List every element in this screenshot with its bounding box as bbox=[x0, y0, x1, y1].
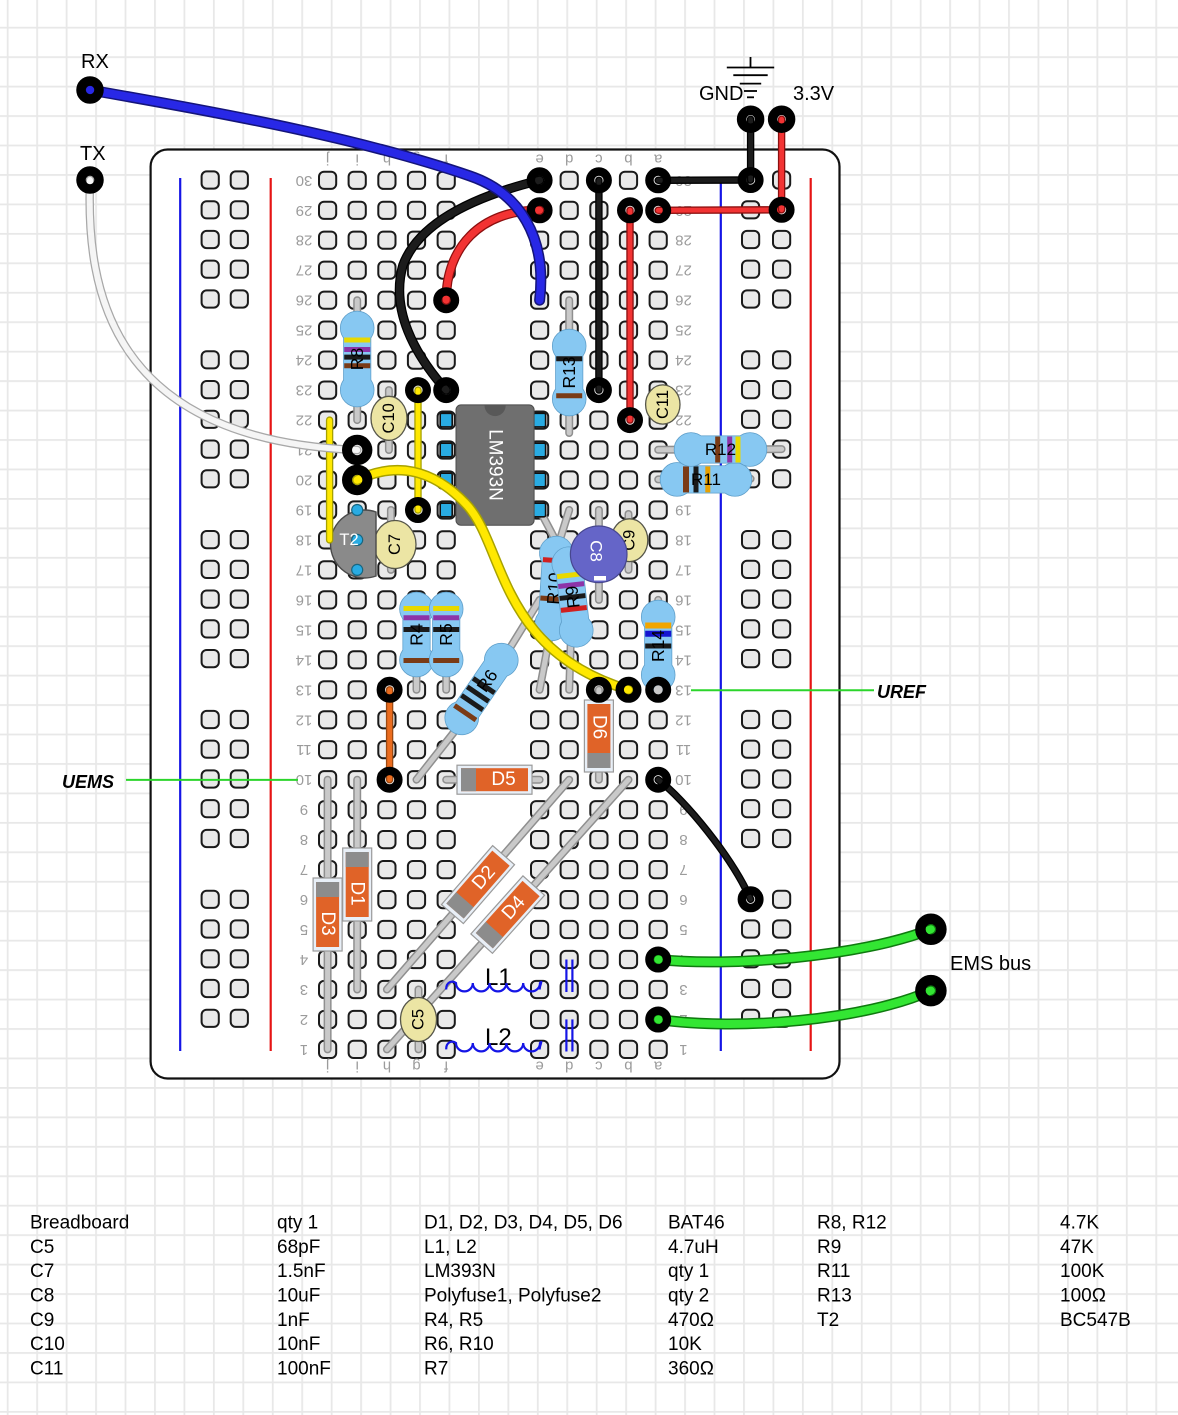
svg-text:100K: 100K bbox=[1060, 1261, 1105, 1282]
svg-text:L1, L2: L1, L2 bbox=[424, 1237, 477, 1258]
svg-text:17: 17 bbox=[296, 561, 313, 578]
svg-text:11: 11 bbox=[296, 741, 312, 758]
svg-text:16: 16 bbox=[675, 591, 692, 608]
svg-text:28: 28 bbox=[675, 232, 692, 249]
svg-text:R11: R11 bbox=[691, 470, 721, 489]
svg-text:qty 1: qty 1 bbox=[668, 1261, 709, 1282]
svg-text:C10: C10 bbox=[30, 1334, 65, 1355]
svg-text:4.7K: 4.7K bbox=[1060, 1213, 1099, 1234]
svg-text:c: c bbox=[595, 151, 603, 168]
svg-text:TX: TX bbox=[80, 143, 106, 165]
svg-text:LM393N: LM393N bbox=[424, 1261, 496, 1282]
svg-text:R9: R9 bbox=[561, 585, 583, 609]
svg-text:RX: RX bbox=[81, 51, 109, 73]
svg-text:3: 3 bbox=[679, 981, 687, 998]
svg-text:25: 25 bbox=[675, 322, 692, 339]
svg-text:d: d bbox=[565, 151, 573, 168]
svg-text:22: 22 bbox=[296, 412, 313, 429]
svg-text:i: i bbox=[356, 1058, 359, 1075]
svg-text:C9: C9 bbox=[30, 1310, 54, 1331]
svg-text:24: 24 bbox=[675, 352, 692, 369]
svg-text:D3: D3 bbox=[317, 911, 338, 935]
svg-text:a: a bbox=[653, 151, 662, 168]
svg-text:6: 6 bbox=[300, 891, 308, 908]
svg-text:4: 4 bbox=[300, 951, 308, 968]
svg-text:1: 1 bbox=[300, 1041, 308, 1058]
svg-text:R5: R5 bbox=[436, 623, 456, 645]
svg-text:3: 3 bbox=[300, 981, 308, 998]
svg-text:LM393N: LM393N bbox=[485, 429, 506, 501]
svg-text:C11: C11 bbox=[30, 1359, 63, 1380]
svg-text:12: 12 bbox=[296, 711, 313, 728]
svg-text:b: b bbox=[624, 1058, 632, 1075]
svg-text:C5: C5 bbox=[30, 1237, 54, 1258]
svg-text:EMS bus: EMS bus bbox=[950, 953, 1031, 975]
svg-text:5: 5 bbox=[300, 921, 308, 938]
svg-text:10uF: 10uF bbox=[277, 1286, 320, 1307]
svg-text:qty 1: qty 1 bbox=[277, 1213, 318, 1234]
svg-text:j: j bbox=[326, 151, 330, 168]
svg-text:d: d bbox=[565, 1058, 573, 1075]
svg-text:24: 24 bbox=[296, 352, 313, 369]
svg-text:qty 2: qty 2 bbox=[668, 1286, 709, 1307]
svg-text:3.3V: 3.3V bbox=[793, 83, 835, 105]
svg-text:C8: C8 bbox=[30, 1286, 54, 1307]
svg-text:23: 23 bbox=[296, 382, 313, 399]
svg-text:100nF: 100nF bbox=[277, 1359, 331, 1380]
svg-text:18: 18 bbox=[675, 531, 692, 548]
svg-text:R13: R13 bbox=[559, 356, 579, 388]
svg-text:j: j bbox=[326, 1058, 330, 1075]
svg-text:25: 25 bbox=[296, 322, 313, 339]
svg-text:UREF: UREF bbox=[877, 682, 927, 702]
svg-text:8: 8 bbox=[300, 831, 308, 848]
svg-text:13: 13 bbox=[675, 681, 692, 698]
svg-text:26: 26 bbox=[675, 292, 692, 309]
svg-text:g: g bbox=[412, 1058, 420, 1075]
svg-text:C7: C7 bbox=[386, 534, 404, 555]
svg-text:360Ω: 360Ω bbox=[668, 1359, 714, 1380]
svg-text:1: 1 bbox=[679, 1041, 687, 1058]
svg-text:i: i bbox=[356, 151, 359, 168]
svg-text:T2: T2 bbox=[339, 531, 358, 549]
svg-text:R9: R9 bbox=[817, 1237, 841, 1258]
svg-text:26: 26 bbox=[296, 292, 313, 309]
svg-text:1.5nF: 1.5nF bbox=[277, 1261, 326, 1282]
svg-text:R4, R5: R4, R5 bbox=[424, 1310, 483, 1331]
svg-text:R13: R13 bbox=[817, 1286, 852, 1307]
svg-text:R7: R7 bbox=[424, 1359, 448, 1380]
svg-text:470Ω: 470Ω bbox=[668, 1310, 714, 1331]
svg-text:29: 29 bbox=[296, 202, 313, 219]
svg-text:47K: 47K bbox=[1060, 1237, 1094, 1258]
svg-text:R6, R10: R6, R10 bbox=[424, 1334, 494, 1355]
svg-text:R14: R14 bbox=[648, 630, 668, 662]
svg-text:6: 6 bbox=[679, 891, 687, 908]
svg-text:7: 7 bbox=[679, 861, 687, 878]
svg-text:10: 10 bbox=[296, 771, 313, 788]
svg-text:27: 27 bbox=[296, 262, 313, 279]
svg-text:19: 19 bbox=[675, 502, 692, 519]
svg-text:C5: C5 bbox=[410, 1009, 428, 1030]
svg-text:2: 2 bbox=[300, 1011, 308, 1028]
svg-text:9: 9 bbox=[300, 801, 308, 818]
svg-text:h: h bbox=[383, 1058, 391, 1075]
svg-text:15: 15 bbox=[296, 621, 313, 638]
svg-text:b: b bbox=[624, 151, 632, 168]
svg-text:T2: T2 bbox=[817, 1310, 839, 1331]
svg-text:4.7uH: 4.7uH bbox=[668, 1237, 719, 1258]
svg-text:c: c bbox=[595, 1058, 603, 1075]
svg-text:12: 12 bbox=[675, 711, 692, 728]
svg-text:R8, R12: R8, R12 bbox=[817, 1213, 887, 1234]
svg-text:Breadboard: Breadboard bbox=[30, 1213, 129, 1234]
svg-text:8: 8 bbox=[679, 831, 687, 848]
svg-text:30: 30 bbox=[296, 172, 313, 189]
svg-text:R12: R12 bbox=[705, 440, 736, 459]
svg-text:28: 28 bbox=[296, 232, 313, 249]
svg-text:7: 7 bbox=[300, 861, 308, 878]
svg-text:15: 15 bbox=[675, 621, 692, 638]
svg-text:a: a bbox=[653, 1058, 662, 1075]
svg-text:C7: C7 bbox=[30, 1261, 54, 1282]
svg-text:GND: GND bbox=[699, 83, 743, 105]
svg-text:R8: R8 bbox=[347, 348, 367, 370]
svg-text:13: 13 bbox=[296, 681, 313, 698]
svg-text:e: e bbox=[535, 1058, 543, 1075]
svg-text:14: 14 bbox=[675, 651, 692, 668]
svg-text:16: 16 bbox=[296, 591, 313, 608]
svg-text:100Ω: 100Ω bbox=[1060, 1286, 1106, 1307]
svg-text:1nF: 1nF bbox=[277, 1310, 310, 1331]
svg-text:5: 5 bbox=[679, 921, 687, 938]
svg-text:R4: R4 bbox=[407, 623, 427, 646]
svg-text:68pF: 68pF bbox=[277, 1237, 320, 1258]
svg-text:10nF: 10nF bbox=[277, 1334, 320, 1355]
svg-text:19: 19 bbox=[296, 502, 313, 519]
svg-text:14: 14 bbox=[296, 651, 313, 668]
svg-text:11: 11 bbox=[676, 741, 692, 758]
svg-text:D1, D2, D3, D4, D5, D6: D1, D2, D3, D4, D5, D6 bbox=[424, 1213, 623, 1234]
svg-text:10K: 10K bbox=[668, 1334, 702, 1355]
svg-text:18: 18 bbox=[296, 531, 313, 548]
svg-text:R11: R11 bbox=[817, 1261, 850, 1282]
svg-text:27: 27 bbox=[675, 262, 692, 279]
svg-text:UEMS: UEMS bbox=[62, 772, 114, 792]
svg-text:Polyfuse1, Polyfuse2: Polyfuse1, Polyfuse2 bbox=[424, 1286, 601, 1307]
svg-text:D6: D6 bbox=[588, 715, 609, 739]
svg-text:10: 10 bbox=[675, 771, 692, 788]
svg-text:D1: D1 bbox=[347, 881, 368, 905]
svg-text:BC547B: BC547B bbox=[1060, 1310, 1131, 1331]
svg-text:BAT46: BAT46 bbox=[668, 1213, 725, 1234]
svg-text:C11: C11 bbox=[654, 390, 672, 419]
svg-text:20: 20 bbox=[296, 472, 313, 489]
svg-text:D5: D5 bbox=[491, 769, 515, 790]
svg-text:e: e bbox=[535, 151, 543, 168]
svg-text:C8: C8 bbox=[587, 540, 606, 562]
svg-text:17: 17 bbox=[675, 561, 692, 578]
svg-text:C10: C10 bbox=[380, 403, 398, 433]
